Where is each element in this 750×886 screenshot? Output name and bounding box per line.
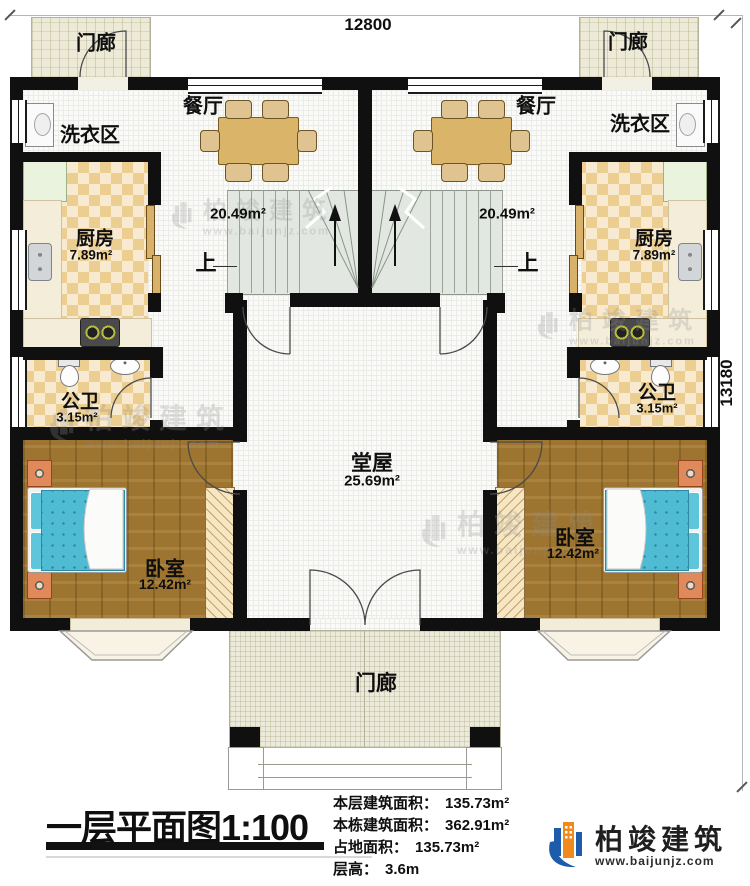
door-arc-bedroom	[188, 442, 240, 494]
door-arc-hall-double	[310, 570, 365, 625]
door-arc-bathroom	[579, 378, 619, 418]
stair-winder-lines	[308, 190, 358, 288]
label-porch-top-right: 门廊	[608, 26, 648, 55]
bed-blanket	[84, 489, 123, 569]
stat-value: 135.73m²	[445, 795, 509, 812]
bay-window	[60, 631, 192, 660]
label-bathroom-left-area: 3.15m²	[56, 410, 97, 425]
floor-plan-canvas: 柏竣建筑www.baijunjz.com 柏竣建筑www.baijunjz.co…	[0, 0, 750, 886]
dimension-top-value: 12800	[344, 15, 391, 35]
door-arc-bathroom	[111, 378, 151, 418]
stair-winder-lines	[372, 190, 422, 288]
door-arc-stair-hall	[440, 307, 487, 354]
stair-up-arrowhead	[389, 204, 401, 221]
stat-value: 362.91m²	[445, 817, 509, 834]
stat-label: 层高：	[333, 861, 378, 878]
label-living-left-area: 20.49m²	[210, 206, 266, 223]
company-name: 柏竣建筑	[595, 818, 727, 858]
company-logo: 柏竣建筑 www.baijunjz.com	[543, 806, 748, 884]
stat-label: 本栋建筑面积：	[333, 817, 438, 834]
label-kitchen-right-area: 7.89m²	[633, 248, 676, 263]
label-up-right: 上	[518, 247, 539, 277]
label-bedroom-left-area: 12.42m²	[139, 576, 191, 592]
door-arc-bedroom	[490, 442, 542, 494]
company-logo-icon	[546, 816, 586, 870]
label-kitchen-left: 厨房	[76, 224, 114, 251]
label-laundry-right: 洗衣区	[610, 108, 670, 137]
bay-window	[538, 631, 670, 660]
door-arc-stair-hall	[243, 307, 290, 354]
label-laundry-left: 洗衣区	[60, 119, 120, 148]
label-kitchen-right: 厨房	[635, 224, 673, 251]
area-statistics: 本层建筑面积：135.73m² 本栋建筑面积：362.91m² 占地面积：135…	[333, 793, 509, 881]
title-underline	[46, 842, 324, 850]
dimension-right-value: 13180	[717, 359, 737, 406]
door-arc-hall-double	[365, 570, 420, 625]
stat-value: 135.73m²	[415, 839, 479, 856]
label-kitchen-left-area: 7.89m²	[70, 248, 113, 263]
label-hall-area: 25.69m²	[344, 473, 400, 490]
stat-row: 层高：3.6m	[333, 859, 509, 881]
stair-up-arrowhead	[329, 204, 341, 221]
label-dining-right: 餐厅	[516, 90, 556, 119]
stat-row: 本栋建筑面积：362.91m²	[333, 815, 509, 837]
label-living-right-area: 20.49m²	[479, 206, 535, 223]
up-direction-line	[213, 266, 237, 267]
dimension-tick	[730, 17, 741, 28]
dimension-line-right	[742, 15, 743, 791]
stat-row: 本层建筑面积：135.73m²	[333, 793, 509, 815]
stat-label: 本层建筑面积：	[333, 795, 438, 812]
stat-row: 占地面积：135.73m²	[333, 837, 509, 859]
company-url: www.baijunjz.com	[595, 854, 715, 868]
label-bedroom-right-area: 12.42m²	[547, 545, 599, 561]
bed-blanket	[607, 489, 646, 569]
label-porch-bottom: 门廊	[355, 667, 397, 697]
up-direction-line	[494, 266, 518, 267]
stat-value: 3.6m	[385, 861, 419, 878]
stat-label: 占地面积：	[333, 839, 408, 856]
label-dining-left: 餐厅	[183, 90, 223, 119]
label-bathroom-right-area: 3.15m²	[636, 401, 677, 416]
label-up-left: 上	[196, 247, 217, 277]
label-porch-top-left: 门廊	[76, 27, 116, 56]
title-underline-thin	[46, 856, 372, 858]
